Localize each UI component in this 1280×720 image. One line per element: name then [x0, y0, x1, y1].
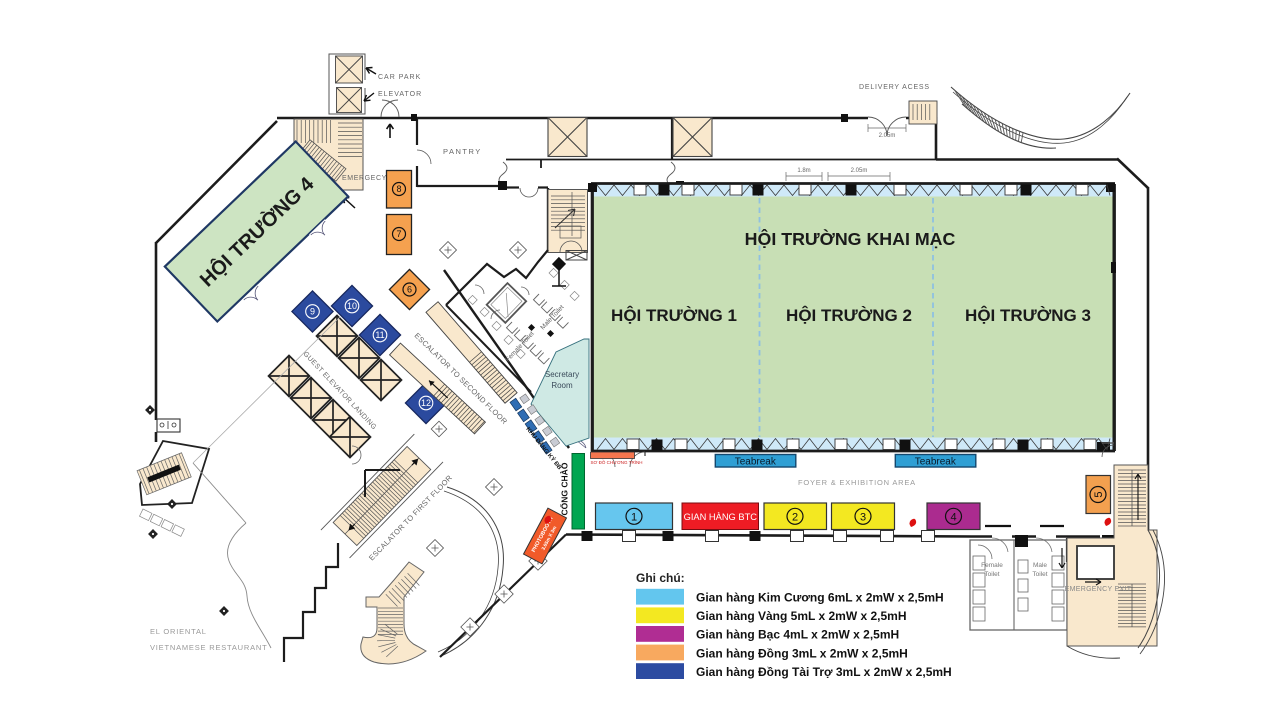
svg-text:Gian hàng Kim Cương 6mL x 2mW: Gian hàng Kim Cương 6mL x 2mW x 2,5mH	[696, 591, 944, 605]
svg-text:GIAN HÀNG BTC: GIAN HÀNG BTC	[684, 512, 758, 522]
svg-text:5: 5	[1093, 491, 1105, 497]
svg-text:Male: Male	[1033, 562, 1047, 569]
svg-text:HỘI TRƯỜNG 1: HỘI TRƯỜNG 1	[611, 306, 737, 325]
svg-text:8: 8	[396, 184, 401, 194]
svg-text:DELIVERY ACESS: DELIVERY ACESS	[859, 84, 930, 91]
svg-text:EMERGENCY EXIT: EMERGENCY EXIT	[1065, 586, 1132, 593]
svg-text:Secretary: Secretary	[545, 370, 579, 379]
svg-text:SƠ ĐỒ CHƯƠNG TRÌNH: SƠ ĐỒ CHƯƠNG TRÌNH	[591, 459, 643, 465]
svg-text:Gian hàng Đồng Tài Trợ 3mL x 2: Gian hàng Đồng Tài Trợ 3mL x 2mW x 2,5mH	[696, 665, 952, 679]
svg-text:HỘI TRƯỜNG KHAI MẠC: HỘI TRƯỜNG KHAI MẠC	[745, 228, 956, 249]
svg-text:12: 12	[421, 398, 431, 408]
svg-text:2: 2	[792, 511, 798, 523]
svg-text:6: 6	[407, 285, 412, 295]
svg-text:Toilet: Toilet	[984, 571, 999, 578]
svg-text:HỘI TRƯỜNG 2: HỘI TRƯỜNG 2	[786, 306, 912, 325]
svg-text:VIETNAMESE RESTAURANT: VIETNAMESE RESTAURANT	[150, 643, 268, 652]
svg-text:2.05m: 2.05m	[851, 168, 868, 174]
svg-text:HỘI TRƯỜNG 3: HỘI TRƯỜNG 3	[965, 306, 1091, 325]
svg-text:Gian hàng Đồng 3mL x 2mW x 2,5: Gian hàng Đồng 3mL x 2mW x 2,5mH	[696, 646, 908, 660]
svg-text:Ghi chú:: Ghi chú:	[636, 571, 685, 585]
svg-text:4: 4	[950, 511, 956, 523]
svg-text:1.8m: 1.8m	[797, 168, 810, 174]
svg-text:2.05m: 2.05m	[879, 133, 896, 139]
svg-text:Teabreak: Teabreak	[735, 457, 777, 468]
svg-text:Teabreak: Teabreak	[915, 457, 957, 468]
svg-text:9: 9	[310, 307, 315, 317]
svg-text:ELEVATOR: ELEVATOR	[378, 91, 422, 98]
svg-text:PANTRY: PANTRY	[443, 147, 482, 156]
svg-text:Room: Room	[551, 381, 573, 390]
svg-text:3: 3	[860, 511, 866, 523]
svg-text:EL ORIENTAL: EL ORIENTAL	[150, 627, 207, 636]
svg-text:Toilet: Toilet	[1032, 571, 1047, 578]
svg-text:10: 10	[347, 301, 357, 311]
svg-text:7: 7	[396, 229, 401, 239]
svg-text:11: 11	[375, 330, 384, 340]
svg-text:Gian hàng Vàng 5mL x 2mW x 2,5: Gian hàng Vàng 5mL x 2mW x 2,5mH	[696, 609, 907, 623]
svg-text:FOYER & EXHIBITION AREA: FOYER & EXHIBITION AREA	[798, 478, 916, 487]
svg-text:CAR PARK: CAR PARK	[378, 74, 421, 81]
svg-text:Female: Female	[981, 562, 1003, 569]
svg-text:1: 1	[631, 511, 637, 523]
svg-text:CỔNG CHÀO: CỔNG CHÀO	[559, 462, 570, 515]
svg-text:Gian hàng Bạc 4mL x 2mW x 2,5m: Gian hàng Bạc 4mL x 2mW x 2,5mH	[696, 628, 899, 642]
